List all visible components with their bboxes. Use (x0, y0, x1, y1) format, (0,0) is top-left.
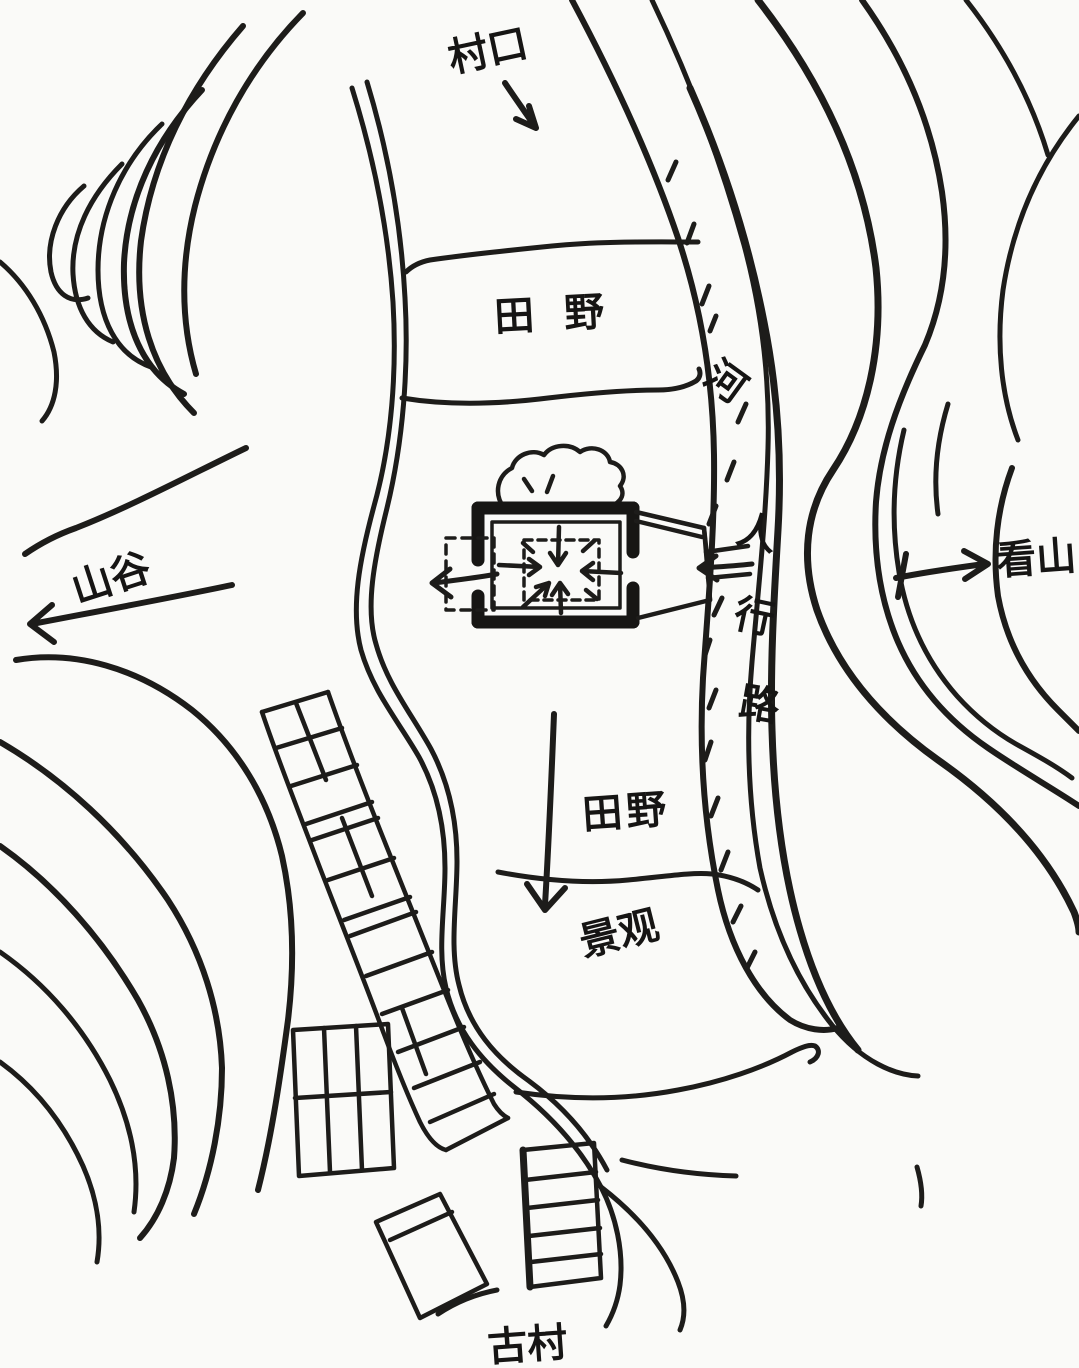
right-annex (636, 512, 710, 618)
village-gate-label: 村口 (444, 21, 532, 83)
grid-house (293, 1024, 394, 1176)
view-mountain-arrow (896, 551, 988, 597)
village-gate-arrow (505, 83, 536, 128)
svg-text:路: 路 (736, 679, 784, 731)
sketch-map-canvas: 村口 田 野 河 人 行 路 山谷 看山 田野 景观 古村 (0, 0, 1079, 1368)
left-dashed-annex (432, 538, 497, 610)
annotation-arrows (30, 83, 988, 910)
contours-bottom-left-mountain (0, 657, 292, 1262)
view-mountain-label: 看山 (995, 533, 1078, 584)
field-upper-label: 田 野 (493, 289, 613, 341)
field-lower-label: 田野 (581, 787, 672, 839)
contours-right-mountain (758, 0, 1079, 932)
courtyard-focus-diagram (499, 527, 621, 613)
ancient-village-label: 古村 (486, 1320, 569, 1368)
west-exit-arrow (432, 569, 497, 597)
building-complex (432, 446, 752, 622)
contours-top-left-mountain (0, 13, 303, 554)
landscape-view-label: 景观 (575, 902, 664, 966)
village-strip (262, 692, 508, 1150)
rock-cloud (498, 446, 624, 508)
sketch-map: 村口 田 野 河 人 行 路 山谷 看山 田野 景观 古村 (0, 0, 1079, 1368)
